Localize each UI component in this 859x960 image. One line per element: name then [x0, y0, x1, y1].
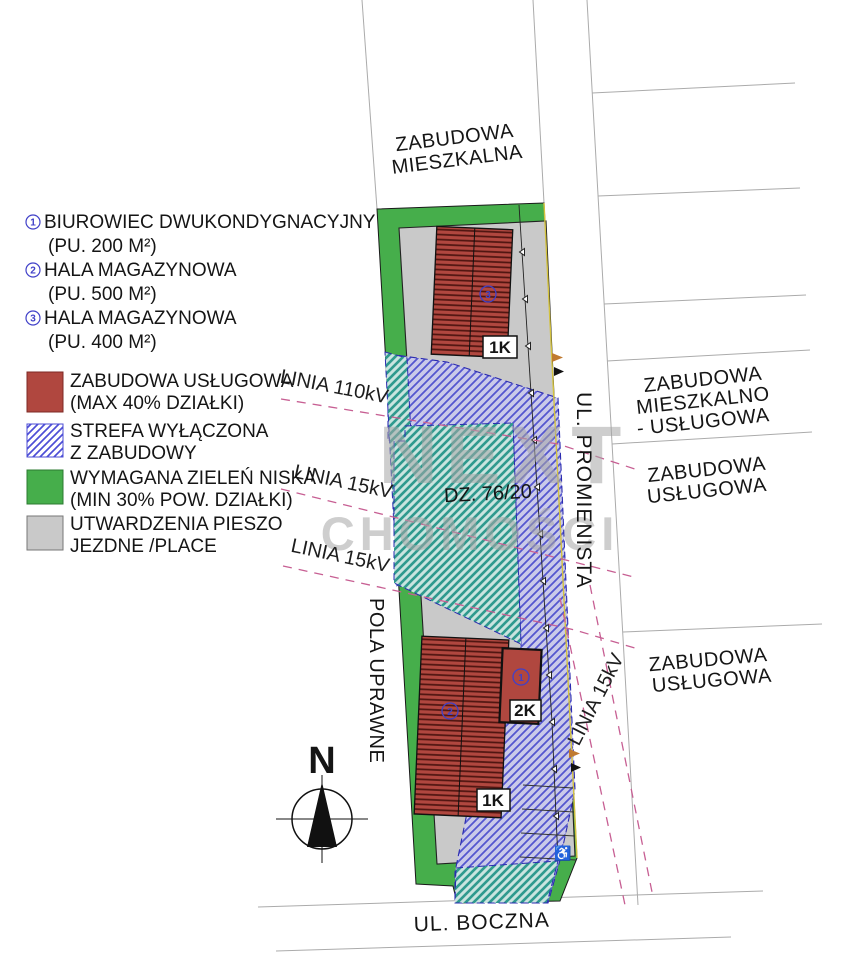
svg-text:1: 1 [518, 673, 524, 684]
site-plan-drawing: ♿ NEXT CHOMOŚCI DZ. 76/20 3 1K 2 1K 1 [0, 0, 859, 960]
plot-number: DZ. 76/20 [444, 481, 533, 508]
teal-south-band [455, 861, 558, 903]
svg-text:(MAX 40% DZIAŁKI): (MAX 40% DZIAŁKI) [70, 393, 244, 414]
label-east-area-1: ZABUDOWA MIESZKALNO - USŁUGOWA [631, 362, 772, 440]
svg-text:ZABUDOWA USŁUGOWA: ZABUDOWA USŁUGOWA [70, 371, 294, 392]
svg-text:(PU. 200 M²): (PU. 200 M²) [48, 236, 157, 257]
svg-text:1K: 1K [489, 338, 511, 357]
svg-text:3: 3 [485, 290, 491, 301]
svg-text:STREFA WYŁĄCZONA: STREFA WYŁĄCZONA [70, 421, 269, 442]
svg-text:(PU. 500 M²): (PU. 500 M²) [48, 284, 157, 305]
label-street-east: UL. PROMIENISTA [572, 392, 595, 589]
entrance-marker-black-1 [554, 367, 564, 376]
svg-text:2: 2 [447, 707, 453, 718]
svg-text:3: 3 [30, 314, 36, 325]
division-line-1 [592, 83, 795, 93]
red-swatch [27, 372, 63, 412]
label-street-south: UL. BOCZNA [413, 909, 550, 937]
legend-zone-red: ZABUDOWA USŁUGOWA (MAX 40% DZIAŁKI) [27, 371, 294, 414]
svg-text:(MIN 30% POW. DZIAŁKI): (MIN 30% POW. DZIAŁKI) [70, 490, 293, 511]
compass-rose: N [276, 740, 368, 863]
accessible-parking-icon: ♿ [554, 845, 571, 862]
division-line-6 [623, 624, 822, 632]
gray-swatch [27, 516, 63, 550]
legend-building-3: 3 HALA MAGAZYNOWA (PU. 400 M²) [26, 308, 237, 353]
division-line-3 [604, 295, 806, 304]
svg-text:HALA MAGAZYNOWA: HALA MAGAZYNOWA [44, 260, 237, 281]
svg-text:HALA MAGAZYNOWA: HALA MAGAZYNOWA [44, 308, 237, 329]
svg-text:1: 1 [30, 218, 36, 229]
svg-text:BIUROWIEC DWUKONDYGNACYJNY: BIUROWIEC DWUKONDYGNACYJNY [44, 212, 376, 233]
svg-text:JEZDNE /PLACE: JEZDNE /PLACE [70, 536, 217, 557]
entrance-marker-black-2 [571, 763, 581, 772]
label-east-area-3: ZABUDOWA USŁUGOWA [648, 644, 773, 697]
entrance-marker-orange-2 [569, 749, 580, 758]
road-line-top-right [533, 0, 544, 203]
green-swatch [27, 470, 63, 504]
division-line-4 [607, 350, 810, 361]
blue-hatch-swatch [27, 424, 63, 457]
svg-text:2K: 2K [514, 701, 536, 720]
svg-text:2: 2 [30, 266, 36, 277]
legend-building-2: 2 HALA MAGAZYNOWA (PU. 500 M²) [26, 260, 237, 305]
svg-text:1K: 1K [482, 791, 504, 810]
compass-needle [307, 782, 337, 847]
svg-text:Z ZABUDOWY: Z ZABUDOWY [70, 443, 197, 464]
legend-zone-paving: UTWARDZENIA PIESZO JEZDNE /PLACE [27, 514, 283, 557]
svg-text:(PU. 400 M²): (PU. 400 M²) [48, 332, 157, 353]
label-north-area: ZABUDOWA MIESZKALNA [388, 119, 524, 179]
road-line-top-left [362, 0, 377, 209]
svg-text:WYMAGANA ZIELEŃ NISKA: WYMAGANA ZIELEŃ NISKA [70, 468, 316, 489]
svg-text:UTWARDZENIA PIESZO: UTWARDZENIA PIESZO [70, 514, 283, 535]
legend-zone-green: WYMAGANA ZIELEŃ NISKA (MIN 30% POW. DZIA… [27, 468, 316, 511]
legend-building-1: 1 BIUROWIEC DWUKONDYGNACYJNY (PU. 200 M²… [26, 212, 376, 257]
label-east-area-2: ZABUDOWA USŁUGOWA [644, 453, 769, 508]
legend-zone-exclusion: STREFA WYŁĄCZONA Z ZABUDOWY [27, 421, 269, 464]
division-line-2 [598, 188, 800, 196]
road-line-south-bottom [276, 937, 731, 951]
site-plan-screenshot: ♿ NEXT CHOMOŚCI DZ. 76/20 3 1K 2 1K 1 [0, 0, 859, 960]
label-west-area: POLA UPRAWNE [365, 598, 387, 763]
label-linia-110kv: LINIA 110kV [278, 366, 391, 409]
entrance-marker-orange-1 [552, 353, 563, 362]
